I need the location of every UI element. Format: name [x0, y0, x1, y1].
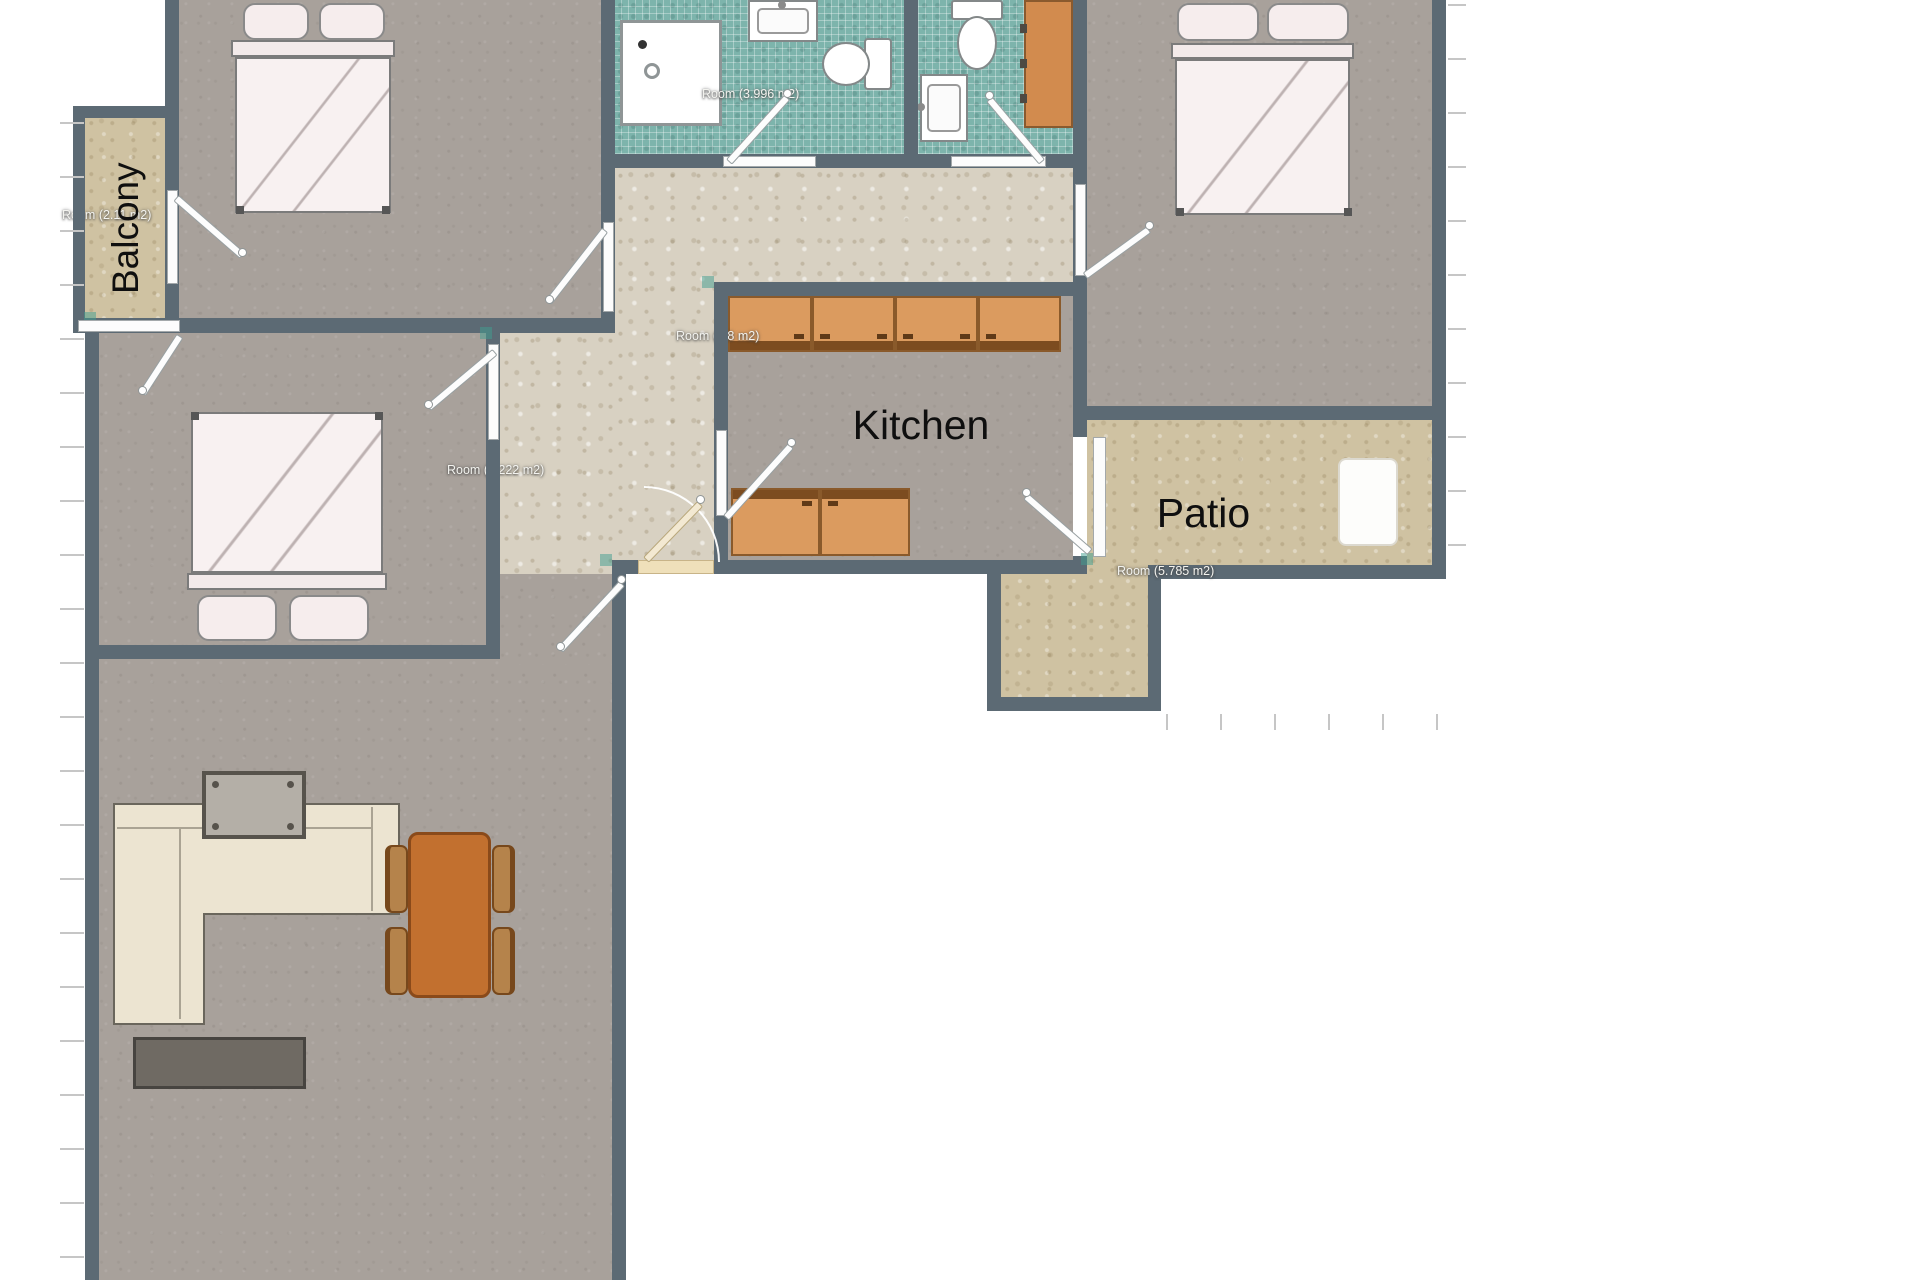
wardrobe-hinge — [1020, 59, 1027, 68]
patio-label[interactable]: Patio — [1146, 490, 1261, 536]
dining-table[interactable] — [408, 832, 491, 998]
sink-main-faucet-icon — [778, 1, 786, 9]
wall — [85, 318, 99, 1280]
balcony-label[interactable]: Balcony — [95, 128, 157, 328]
kitchen-cabinet-upper[interactable] — [978, 296, 1061, 352]
wardrobe[interactable] — [1024, 0, 1073, 128]
door-knob — [424, 400, 433, 409]
bed1-foot-right — [382, 206, 390, 214]
sofa-arm-line — [371, 807, 373, 911]
dining-chair[interactable] — [385, 927, 408, 995]
bed2-pillow-right[interactable] — [289, 595, 369, 641]
door-threshold-kitchen[interactable] — [716, 430, 727, 516]
ruler-right — [1448, 4, 1466, 580]
door-knob — [1145, 221, 1154, 230]
wall — [612, 560, 638, 574]
door-threshold-bathroom-small[interactable] — [951, 156, 1046, 167]
wall-snap-point — [480, 327, 492, 339]
door-knob — [1022, 488, 1031, 497]
bed3-headboard[interactable] — [1171, 43, 1354, 59]
bed2-headboard[interactable] — [187, 573, 387, 590]
wall — [1432, 0, 1446, 579]
wall — [987, 565, 1001, 711]
floor-plan-canvas: Room (2.11 m2) Room (9.222 m2) Room (3.9… — [0, 0, 1920, 1280]
door-knob — [696, 495, 705, 504]
wall — [714, 282, 1087, 296]
coffee-table-leg — [287, 823, 294, 830]
wardrobe-hinge — [1020, 24, 1027, 33]
ruler-bottom — [1166, 714, 1446, 730]
wall — [85, 645, 500, 659]
tv-stand[interactable] — [133, 1037, 306, 1089]
shower[interactable] — [620, 20, 722, 126]
wall — [904, 0, 918, 154]
room-living-nook-floor[interactable] — [500, 574, 612, 664]
coffee-table-leg — [212, 823, 219, 830]
bed2-foot-right — [375, 412, 383, 420]
sofa-chaise[interactable] — [113, 913, 205, 1025]
door-knob — [556, 642, 565, 651]
bed3-foot-left — [1176, 208, 1184, 216]
shower-head-icon — [638, 40, 647, 49]
bed3-pillow-left[interactable] — [1177, 3, 1259, 41]
kitchen-cabinet-upper[interactable] — [895, 296, 978, 352]
wall — [714, 560, 1087, 574]
patio-table[interactable] — [1338, 458, 1398, 546]
door-knob — [617, 575, 626, 584]
patio-slider-door[interactable] — [1093, 437, 1106, 557]
kitchen-label[interactable]: Kitchen — [836, 402, 1006, 448]
bed1-pillow-right[interactable] — [319, 3, 385, 40]
door-knob — [783, 89, 792, 98]
hallway-corridor-floor[interactable] — [614, 168, 1073, 282]
door-knob — [138, 386, 147, 395]
wall — [987, 697, 1161, 711]
dining-chair[interactable] — [492, 927, 515, 995]
wall — [1073, 406, 1446, 420]
wardrobe-hinge — [1020, 94, 1027, 103]
bed3-foot-right — [1344, 208, 1352, 216]
hallway-left-floor[interactable] — [500, 333, 614, 574]
bed3-mattress[interactable] — [1175, 59, 1350, 215]
dining-chair[interactable] — [385, 845, 408, 913]
door-knob — [985, 91, 994, 100]
toilet-small-bowl[interactable] — [957, 16, 997, 70]
wall-snap-point — [702, 276, 714, 288]
bed2-pillow-left[interactable] — [197, 595, 277, 641]
toilet-main-bowl[interactable] — [822, 42, 870, 86]
bed1-mattress[interactable] — [235, 57, 391, 213]
door-knob — [787, 438, 796, 447]
bed1-headboard[interactable] — [231, 40, 395, 57]
wall — [612, 560, 626, 1280]
door-threshold-bedroom3[interactable] — [1075, 184, 1086, 276]
coffee-table-leg — [212, 781, 219, 788]
wall — [714, 282, 728, 574]
wall-snap-point — [600, 554, 612, 566]
wall — [73, 106, 179, 118]
kitchen-cabinet-lower[interactable] — [820, 488, 910, 556]
bed2-mattress[interactable] — [191, 412, 383, 573]
ruler-left — [60, 122, 84, 1280]
sink-main-basin — [757, 8, 809, 34]
room-patio-extension-floor[interactable] — [1001, 565, 1148, 697]
sink-small-faucet-icon — [917, 103, 925, 111]
door-knob — [238, 248, 247, 257]
dining-chair[interactable] — [492, 845, 515, 913]
door-knob — [545, 295, 554, 304]
bed3-pillow-right[interactable] — [1267, 3, 1349, 41]
room-tag-patio: Room (5.785 m2) — [1117, 564, 1214, 578]
wall-snap-point — [1081, 553, 1093, 565]
bed1-pillow-left[interactable] — [243, 3, 309, 40]
kitchen-cabinet-upper[interactable] — [812, 296, 895, 352]
coffee-table-leg — [287, 781, 294, 788]
bed1-foot-left — [236, 206, 244, 214]
wall — [1148, 579, 1161, 711]
kitchen-cabinet-upper[interactable] — [728, 296, 812, 352]
sink-small-basin — [927, 84, 961, 132]
bed2-foot-left — [191, 412, 199, 420]
sofa-chaise-line — [179, 829, 181, 1019]
shower-drain-icon — [644, 63, 660, 79]
